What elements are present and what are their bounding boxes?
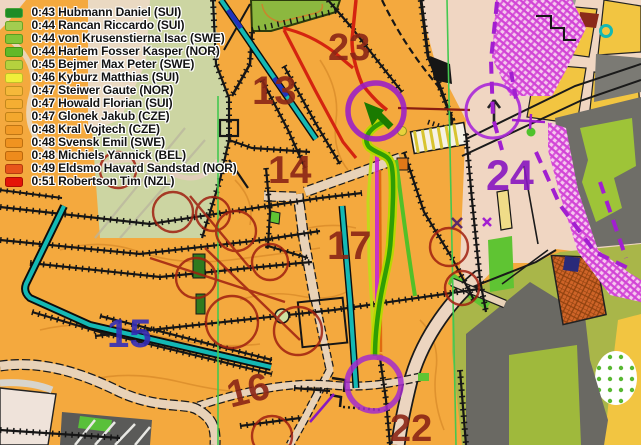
svg-text:15: 15 [107, 312, 152, 356]
svg-text:13: 13 [252, 69, 297, 113]
svg-text:23: 23 [328, 27, 370, 69]
svg-text:24: 24 [486, 152, 534, 200]
svg-text:14: 14 [268, 149, 312, 192]
svg-text:17: 17 [327, 224, 372, 268]
svg-text:22: 22 [390, 408, 432, 445]
